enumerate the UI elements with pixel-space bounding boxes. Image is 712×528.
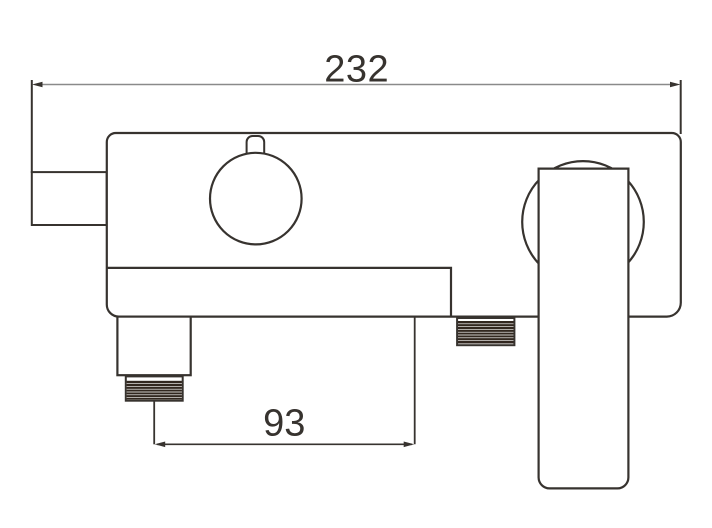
- svg-text:93: 93: [263, 403, 305, 445]
- svg-text:232: 232: [324, 49, 389, 91]
